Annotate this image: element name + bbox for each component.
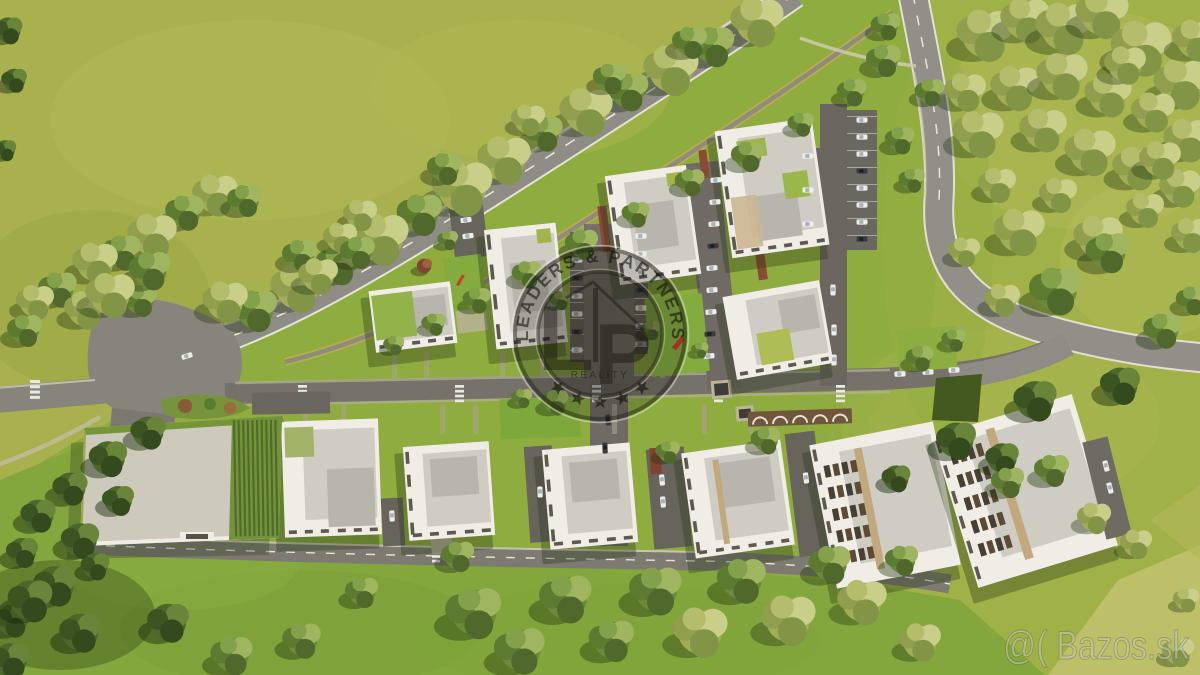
svg-text:@( Bazos.sk: @( Bazos.sk [1003, 624, 1190, 668]
svg-text:REALITY: REALITY [571, 370, 629, 381]
